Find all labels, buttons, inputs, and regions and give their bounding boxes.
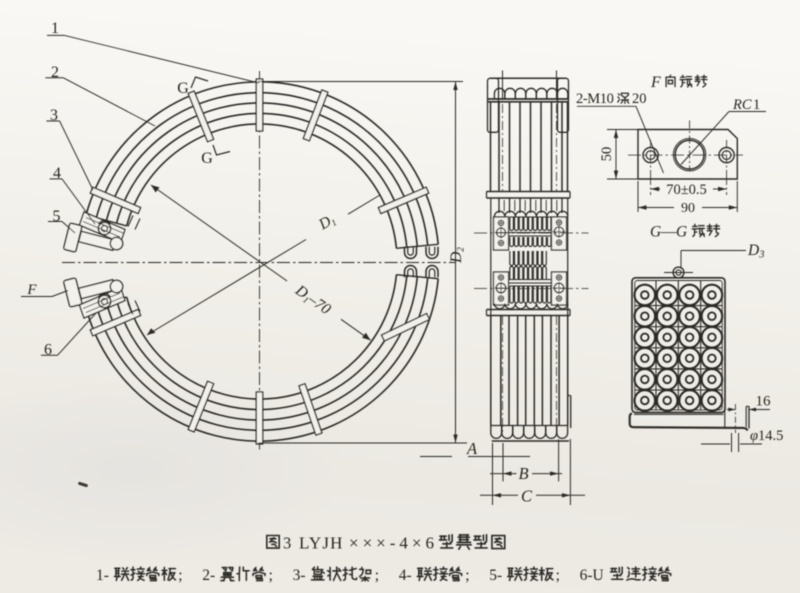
svg-text:×××-4×6: ×××-4×6 [349,534,438,553]
svg-text:;: ; [178,567,182,584]
svg-text:5: 5 [53,208,61,225]
svg-text:F: F [26,282,37,298]
svg-text:1-: 1- [96,567,109,584]
svg-text:90: 90 [681,201,695,216]
svg-text:70±0.5: 70±0.5 [666,182,707,198]
svg-text:2-M10: 2-M10 [576,91,614,107]
svg-text:;: ; [465,567,469,584]
svg-text:—: — [660,224,677,241]
svg-text:6-U: 6-U [580,567,604,584]
svg-text:RC: RC [732,97,752,113]
svg-text:3-: 3- [293,567,306,584]
svg-text:C: C [521,487,533,506]
svg-text:LYJH: LYJH [299,534,344,553]
svg-text:16: 16 [756,394,772,410]
svg-text:1: 1 [753,97,760,113]
svg-text:4-: 4- [399,567,412,584]
svg-text:;: ; [375,567,379,584]
svg-text:F: F [650,74,661,91]
svg-text:;: ; [269,567,273,584]
svg-text:G: G [177,80,189,97]
svg-text:1: 1 [51,20,59,37]
svg-text:50: 50 [599,147,615,162]
svg-text:G: G [676,224,687,241]
svg-text:3: 3 [50,107,58,124]
svg-text:20: 20 [632,91,647,107]
svg-text:2: 2 [51,64,59,81]
svg-text:G: G [650,224,661,241]
svg-text:3: 3 [283,534,291,553]
svg-text:G: G [201,150,213,167]
svg-text:B: B [518,464,528,483]
svg-text:;: ; [556,567,560,584]
svg-text:4: 4 [53,165,61,182]
svg-text:A: A [466,439,478,458]
svg-text:2-: 2- [202,567,215,584]
svg-text:14.5: 14.5 [758,428,783,444]
svg-text:5-: 5- [489,567,502,584]
svg-text:φ: φ [750,428,758,444]
svg-text:6: 6 [44,341,52,358]
